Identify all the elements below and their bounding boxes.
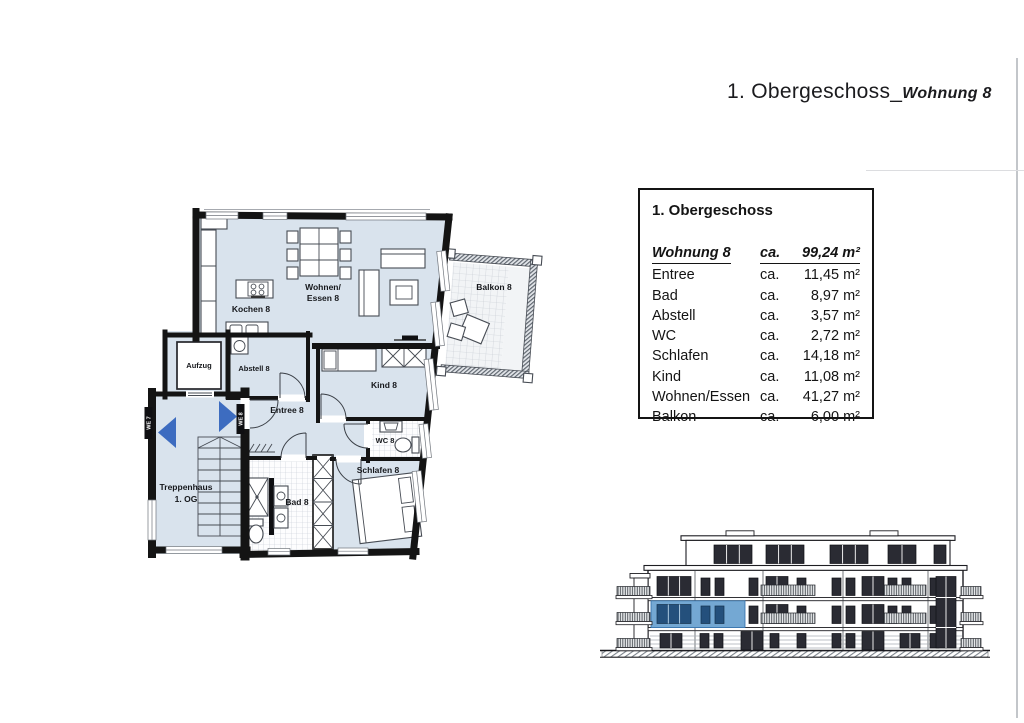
balcony bbox=[436, 249, 542, 383]
floor-plan: WE 7 WE 8 Kochen 8 Wohnen/ Essen 8 Balko… bbox=[140, 195, 560, 580]
table-row: Bad ca.8,97m² bbox=[652, 286, 860, 306]
label-bad: Bad 8 bbox=[285, 497, 308, 507]
area-table: 1. Obergeschoss Wohnung 8 ca. 99,24 m² E… bbox=[638, 188, 874, 419]
label-treppenhaus-2: 1. OG bbox=[175, 494, 198, 504]
page-title-main: 1. Obergeschoss_ bbox=[727, 80, 902, 103]
table-row: Abstell ca.3,57m² bbox=[652, 306, 860, 326]
label-balkon: Balkon 8 bbox=[476, 282, 512, 292]
unit-name: Wohnung 8 bbox=[652, 243, 731, 264]
elevation-drawing bbox=[600, 531, 990, 657]
penthouse-windows bbox=[714, 545, 946, 564]
building-elevation bbox=[595, 525, 995, 670]
area-table-header-row: Wohnung 8 ca. 99,24 m² bbox=[652, 243, 860, 264]
page-title: 1. Obergeschoss_Wohnung 8 bbox=[727, 80, 992, 104]
table-row: Schlafen ca.14,18m² bbox=[652, 346, 860, 366]
label-entree: Entree 8 bbox=[270, 405, 304, 415]
bedroom-bed bbox=[352, 473, 421, 544]
washing-machine bbox=[231, 337, 248, 354]
scan-fold-line bbox=[866, 170, 1024, 171]
shaft bbox=[313, 455, 333, 549]
table-row: Wohnen/Essen ca.41,27m² bbox=[652, 387, 860, 407]
table-row: Kind ca.11,08m² bbox=[652, 367, 860, 387]
scan-edge-line bbox=[1016, 58, 1018, 718]
table-row: Balkon ca.6,00m² bbox=[652, 407, 860, 427]
we8-label: WE 8 bbox=[239, 412, 245, 425]
label-kochen: Kochen 8 bbox=[232, 304, 271, 314]
document-page: 1. Obergeschoss_Wohnung 8 1. Obergeschos… bbox=[0, 0, 1024, 723]
table-row: WC ca.2,72m² bbox=[652, 326, 860, 346]
we7-label: WE 7 bbox=[147, 416, 153, 429]
table-row: Entree ca.11,45m² bbox=[652, 265, 860, 285]
label-schlafen: Schlafen 8 bbox=[357, 465, 400, 475]
label-treppenhaus-1: Treppenhaus bbox=[160, 482, 213, 492]
area-table-heading: 1. Obergeschoss bbox=[652, 202, 860, 219]
right-balconies bbox=[960, 587, 983, 651]
left-balconies bbox=[616, 574, 652, 651]
label-abstell: Abstell 8 bbox=[238, 364, 269, 373]
label-wc: WC 8 bbox=[376, 436, 395, 445]
label-kind: Kind 8 bbox=[371, 380, 397, 390]
page-title-sub: Wohnung 8 bbox=[902, 85, 992, 102]
label-wohnen-2: Essen 8 bbox=[307, 293, 339, 303]
label-aufzug: Aufzug bbox=[186, 361, 212, 370]
label-wohnen-1: Wohnen/ bbox=[305, 282, 341, 292]
total-area: 99,24 bbox=[786, 243, 842, 263]
dining-set bbox=[287, 228, 351, 279]
